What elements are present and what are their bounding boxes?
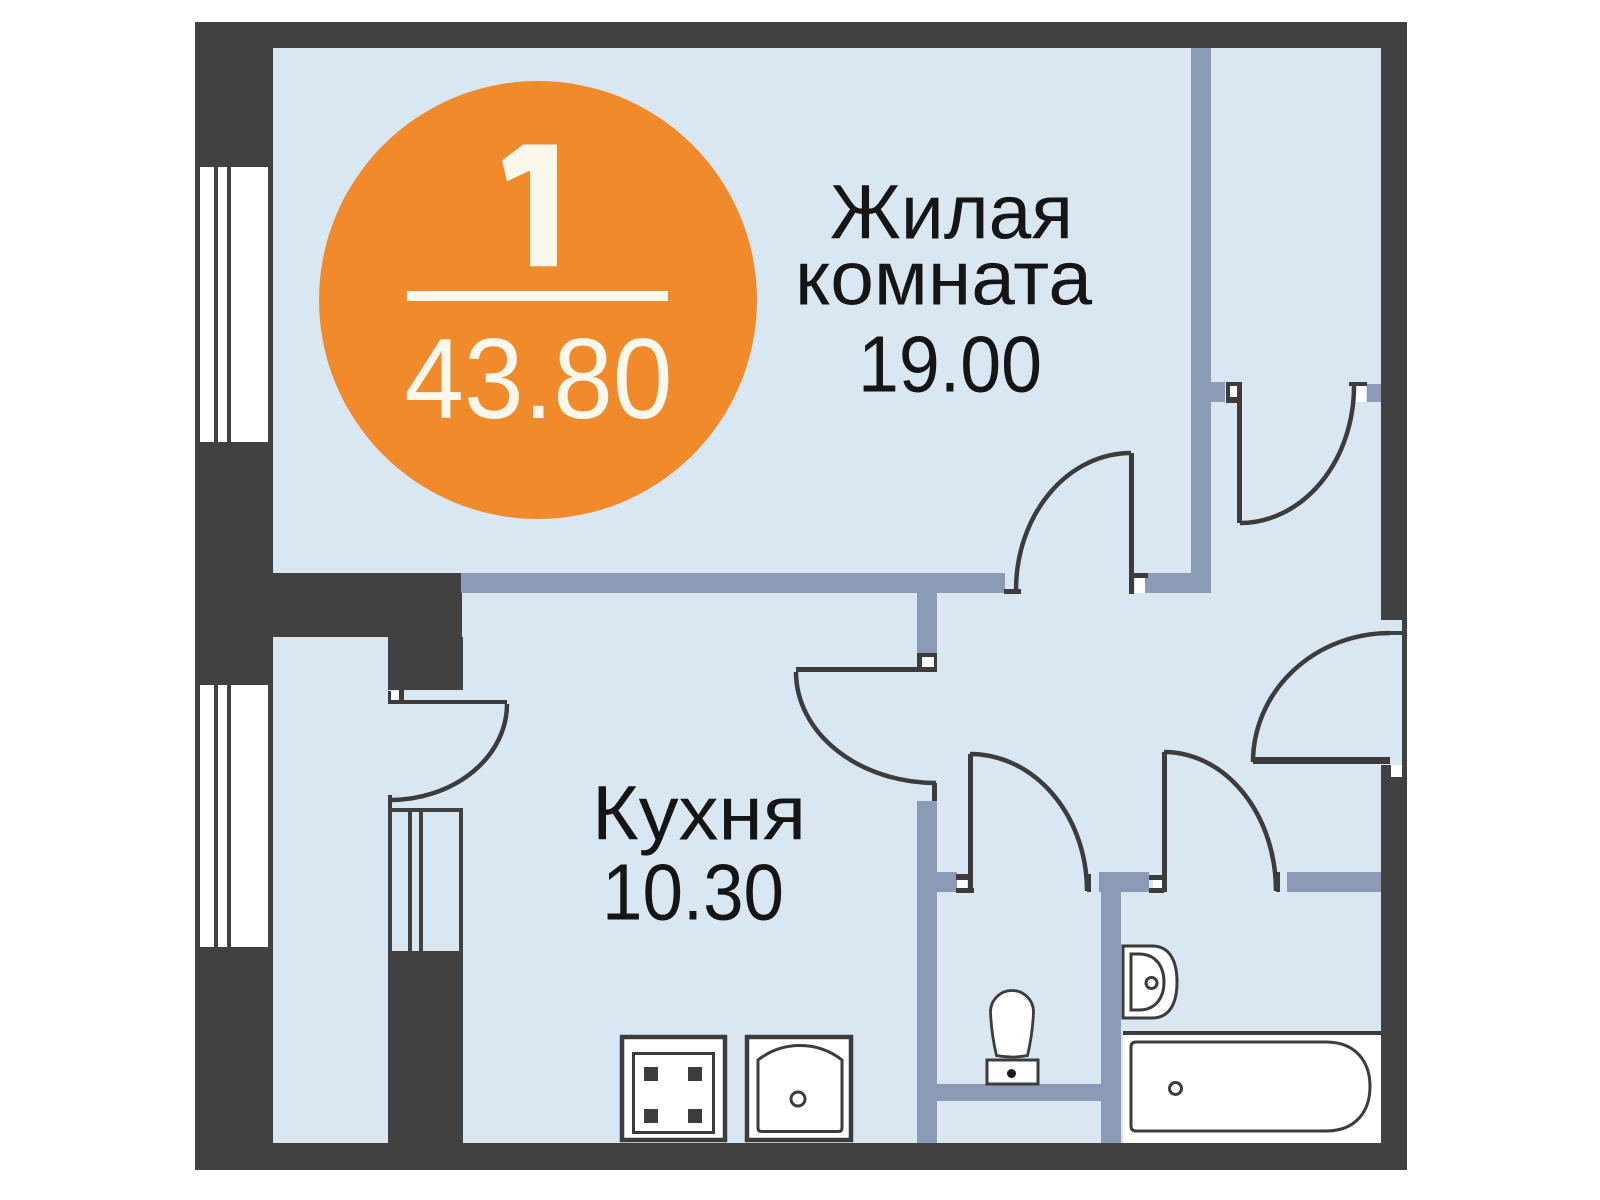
svg-text:10.30: 10.30 xyxy=(602,847,784,936)
svg-text:комната: комната xyxy=(795,236,1092,322)
svg-text:19.00: 19.00 xyxy=(858,319,1042,408)
svg-text:43.80: 43.80 xyxy=(404,316,672,443)
svg-text:Кухня: Кухня xyxy=(592,770,806,856)
